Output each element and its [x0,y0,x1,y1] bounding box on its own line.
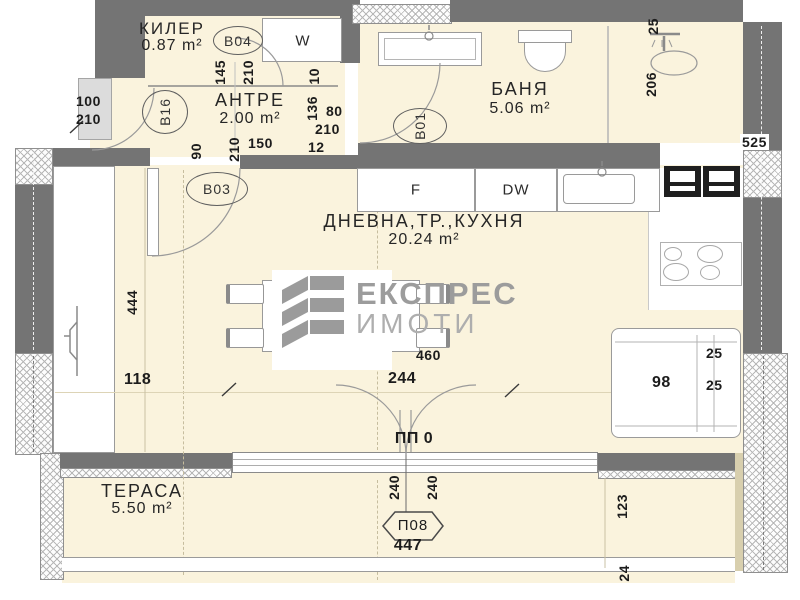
dim-shower-25: 25 [645,18,661,35]
kiler-name: КИЛЕР [139,19,205,39]
wall-left [15,185,53,353]
hatch-left-top [15,148,53,185]
hatch-bottom-left [60,468,232,478]
hatch-right-bottom [743,353,788,573]
hatch-right-mid [743,150,782,198]
dim-sofa-98: 98 [652,374,671,392]
fridge-label: F [411,182,421,199]
dim-living-244: 244 [388,370,416,388]
door-tag-b01: B01 [393,108,447,144]
dim-balcony-447: 447 [394,537,422,555]
wall-topleft-block [95,0,145,78]
dim-b03-w: 90 [188,143,204,160]
living-name: ДНЕВНА,ТР.,КУХНЯ [324,211,525,232]
dim-bath-door-w: 80 [326,103,343,119]
banya-area: 5.06 m² [489,100,550,118]
bathtub-inner [384,38,476,60]
dim-hall-150: 150 [248,135,273,151]
dim-kiler-door-h: 210 [240,60,256,85]
dim-door-240a: 240 [386,475,402,500]
window-line [233,465,597,466]
dim-entry-h: 210 [76,111,101,127]
banya-name: БАНЯ [491,79,548,100]
logo-subtitle: ИМОТИ [356,308,478,340]
wall-right-mid [743,198,782,353]
wall-top-kiler [145,0,360,16]
dim-wall-136: 136 [304,96,320,121]
window-pane [709,186,734,191]
dim-b03-h: 210 [226,137,242,162]
wall-centerline [761,26,762,350]
wall-bottom-left [60,453,232,469]
wall-bottom-right [598,453,743,471]
window-line [233,459,597,460]
dim-terrace-123: 123 [614,494,630,519]
burner [697,245,723,263]
kitchen-sink [563,174,635,204]
axis-line [183,170,184,575]
wall-top-banya [450,0,743,22]
terrace-name: ТЕРАСА [101,481,183,502]
dim-left-444: 444 [124,290,140,315]
dim-balcony-door: ПП 0 [395,430,433,448]
dim-entry-w: 100 [76,93,101,109]
dim-bath-door-h: 210 [315,121,340,137]
wall-right-top [743,22,782,150]
wall-centerline [33,152,34,350]
wall-living-topleft [53,148,150,166]
dim-door-240b: 240 [424,475,440,500]
washer-label: W [295,33,310,50]
antre-name: АНТРЕ [215,90,285,111]
hatch-top-banya [352,4,452,24]
hatch-bottom-right [598,470,743,479]
wall-centerline [33,356,34,452]
entry-door-block [78,78,112,140]
logo-title: ЕКСПРЕС [356,276,518,312]
dishwasher-label: DW [503,182,530,199]
terrace-right-wall [735,453,743,571]
b03-door-leaf [147,168,159,256]
dim-terrace-24: 24 [616,565,632,582]
kitchen-window-unit [664,166,701,197]
wall-kitchen-top [240,155,660,169]
burner [663,263,689,281]
terrace-railing [62,557,735,572]
chair [226,328,264,348]
dim-right-525: 525 [740,134,769,150]
window-pane [709,171,734,182]
balcony-window [232,452,598,473]
chair [226,284,264,304]
burner [664,247,682,261]
kiler-area: 0.87 m² [141,37,202,55]
kitchen-window-unit [703,166,740,197]
dim-wall-10: 10 [306,68,322,85]
dim-shower-206: 206 [643,72,659,97]
wall-centerline [763,356,764,570]
door-tag-b03: B03 [186,172,248,206]
window-pane [670,186,695,191]
burner [700,265,720,280]
closet-strip [53,166,115,453]
balcony-tag: П08 [398,517,428,534]
dim-left-118: 118 [124,371,151,389]
dim-wall-12: 12 [308,139,325,155]
dim-sofa-25b: 25 [706,377,723,393]
door-tag-b04: B04 [213,26,263,55]
door-tag-b16: B16 [142,90,188,134]
antre-area: 2.00 m² [219,110,280,128]
window-pane [670,171,695,182]
terrace-area: 5.50 m² [111,500,172,518]
dim-sofa-25a: 25 [706,345,723,361]
dim-kiler-door-w: 145 [212,60,228,85]
floor-plan: ЕКСПРЕС ИМОТИ КИЛЕР 0.87 m² АНТРЕ 2.00 m… [0,0,800,600]
living-area: 20.24 m² [388,231,459,249]
hatch-left-bottom [15,353,53,455]
dim-living-460: 460 [416,347,441,363]
